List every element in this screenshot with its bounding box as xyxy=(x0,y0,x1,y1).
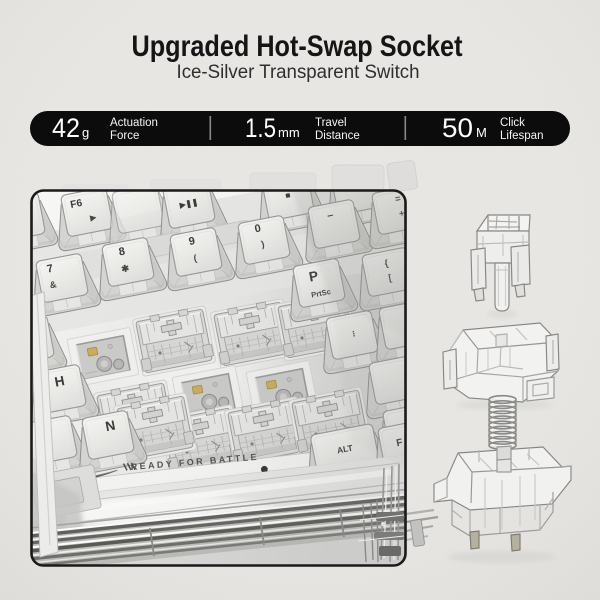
svg-text:Actuation: Actuation xyxy=(110,117,158,129)
svg-text:Lifespan: Lifespan xyxy=(500,130,543,142)
svg-text:Upgraded Hot-Swap Socket: Upgraded Hot-Swap Socket xyxy=(132,30,463,63)
svg-text:1.5: 1.5 xyxy=(245,113,276,143)
svg-text:42: 42 xyxy=(52,113,80,143)
svg-text:Force: Force xyxy=(110,130,139,142)
svg-text:Distance: Distance xyxy=(315,130,360,142)
svg-text:Travel: Travel xyxy=(315,117,347,129)
svg-text:M: M xyxy=(476,125,487,140)
svg-text:Click: Click xyxy=(500,117,525,129)
svg-text:mm: mm xyxy=(278,125,300,140)
svg-text:g: g xyxy=(82,125,89,140)
svg-text:Ice-Silver Transparent Switch: Ice-Silver Transparent Switch xyxy=(177,62,420,83)
svg-text:50: 50 xyxy=(442,113,473,143)
